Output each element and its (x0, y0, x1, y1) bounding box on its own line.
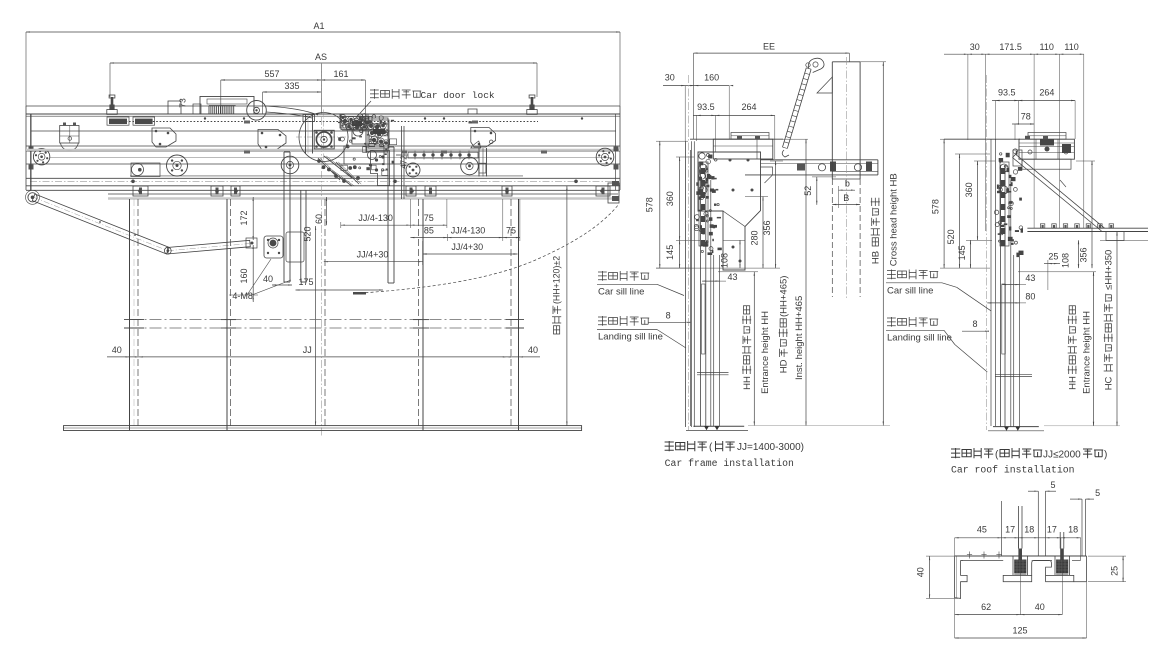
svg-text:8: 8 (666, 310, 671, 320)
svg-text:30: 30 (970, 42, 980, 52)
svg-text:356: 356 (762, 220, 772, 235)
svg-text:62: 62 (981, 602, 991, 612)
svg-text:85: 85 (424, 226, 434, 236)
svg-text:171.5: 171.5 (999, 42, 1022, 52)
svg-text:108: 108 (720, 253, 730, 268)
svg-text:108: 108 (1060, 253, 1070, 268)
svg-text:Car roof installation: Car roof installation (951, 465, 1075, 476)
svg-text:EE: EE (763, 42, 775, 52)
svg-text:264: 264 (1039, 88, 1054, 98)
svg-text:17: 17 (1005, 525, 1015, 535)
svg-text:Car door lock: Car door lock (421, 90, 495, 101)
svg-text:Entrance height HH: Entrance height HH (760, 311, 771, 394)
svg-text:145: 145 (665, 245, 675, 260)
svg-text:JJ/4+30: JJ/4+30 (357, 250, 389, 260)
svg-text:110: 110 (1040, 42, 1054, 52)
svg-text:360: 360 (964, 182, 974, 197)
svg-text:25: 25 (1110, 566, 1120, 576)
svg-text:40: 40 (1035, 602, 1045, 612)
svg-text:40: 40 (112, 345, 122, 355)
svg-text:43: 43 (727, 272, 737, 282)
svg-text:B: B (843, 193, 849, 203)
svg-text:520: 520 (303, 226, 313, 241)
svg-text:HB: HB (871, 251, 882, 264)
svg-text:Cross head height HB: Cross head height HB (888, 173, 899, 266)
svg-text:5: 5 (1095, 488, 1100, 498)
svg-text:43: 43 (1025, 273, 1035, 283)
svg-text:18: 18 (1024, 525, 1034, 535)
svg-text:8: 8 (972, 319, 977, 329)
svg-text:110: 110 (1064, 42, 1078, 52)
svg-text:335: 335 (284, 81, 299, 91)
svg-text:≤HH+350: ≤HH+350 (1104, 250, 1115, 290)
svg-text:40: 40 (916, 567, 926, 577)
svg-text:b: b (845, 179, 850, 189)
svg-text:45: 45 (977, 525, 987, 535)
svg-text:Car sill line: Car sill line (887, 286, 933, 297)
svg-text:JJ=1400-3000): JJ=1400-3000) (737, 442, 804, 453)
svg-text:AS: AS (315, 52, 327, 62)
svg-text:356: 356 (1079, 247, 1089, 262)
svg-text:Entrance height HH: Entrance height HH (1082, 311, 1093, 394)
svg-text:JJ/4+30: JJ/4+30 (451, 242, 483, 252)
svg-text:520: 520 (946, 229, 956, 244)
svg-text:Landing sill line: Landing sill line (887, 333, 952, 344)
svg-text:280: 280 (750, 230, 760, 245)
svg-text:40: 40 (528, 345, 538, 355)
svg-text:Inst. height HH+465: Inst. height HH+465 (794, 296, 805, 380)
svg-text:4-M8: 4-M8 (232, 291, 253, 301)
svg-text:JJ/4-130: JJ/4-130 (451, 226, 486, 236)
svg-text:5: 5 (1050, 480, 1055, 490)
svg-text:52: 52 (803, 186, 813, 196)
svg-text:30: 30 (665, 73, 675, 83)
svg-text:578: 578 (644, 197, 654, 212)
svg-text:264: 264 (741, 102, 756, 112)
svg-text:145: 145 (957, 245, 967, 260)
svg-text:40: 40 (263, 274, 273, 284)
svg-text:HH: HH (742, 376, 753, 390)
svg-text:25: 25 (1048, 252, 1058, 262)
svg-text:HC: HC (1104, 376, 1115, 390)
svg-text:JJ≤2000: JJ≤2000 (1043, 450, 1081, 461)
svg-text:75: 75 (424, 213, 434, 223)
svg-text:557: 557 (264, 69, 279, 79)
svg-text:125: 125 (1012, 626, 1027, 636)
svg-text:160: 160 (239, 268, 249, 283)
svg-text:HD: HD (778, 359, 789, 373)
svg-text:JJ: JJ (303, 345, 312, 355)
svg-text:160: 160 (704, 73, 719, 83)
svg-text:HH: HH (1068, 376, 1079, 390)
svg-text:18: 18 (1068, 525, 1078, 535)
svg-text:360: 360 (665, 191, 675, 206)
svg-text:JJ/4-130: JJ/4-130 (358, 213, 393, 223)
svg-text:): ) (1104, 450, 1107, 461)
svg-text:A1: A1 (313, 21, 324, 31)
svg-text:578: 578 (931, 199, 941, 214)
svg-text:175: 175 (298, 277, 313, 287)
svg-text:Landing sill line: Landing sill line (598, 332, 663, 343)
svg-text:80: 80 (1025, 292, 1035, 302)
svg-text:172: 172 (239, 210, 249, 225)
svg-text:93.5: 93.5 (697, 102, 715, 112)
svg-text:17: 17 (1047, 525, 1057, 535)
svg-text:60: 60 (314, 214, 324, 224)
svg-text:93.5: 93.5 (998, 88, 1016, 98)
svg-text:(HH+120)±2: (HH+120)±2 (552, 256, 562, 304)
svg-text:73: 73 (178, 98, 188, 108)
svg-text:161: 161 (333, 69, 348, 79)
svg-text:(HH+465): (HH+465) (778, 276, 789, 317)
svg-text:Car sill line: Car sill line (598, 287, 644, 298)
svg-text:78: 78 (1021, 111, 1031, 121)
svg-text:Car frame installation: Car frame installation (665, 458, 794, 469)
